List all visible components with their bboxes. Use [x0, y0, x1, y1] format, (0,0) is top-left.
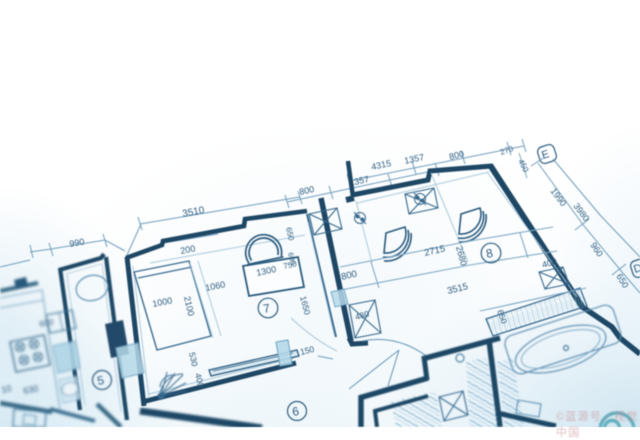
svg-text:270: 270 [499, 144, 515, 157]
svg-text:1000: 1000 [151, 295, 173, 309]
svg-text:6: 6 [291, 404, 300, 419]
svg-text:650: 650 [284, 226, 296, 242]
svg-text:800: 800 [298, 184, 315, 197]
svg-text:3510: 3510 [181, 205, 205, 220]
svg-text:5: 5 [96, 373, 105, 388]
svg-text:650: 650 [614, 272, 630, 290]
svg-text:1990: 1990 [548, 186, 568, 208]
svg-text:800: 800 [448, 149, 465, 162]
svg-text:7: 7 [262, 301, 271, 316]
svg-text:200: 200 [179, 243, 196, 256]
svg-text:480: 480 [354, 309, 371, 322]
svg-text:8: 8 [485, 246, 495, 261]
svg-text:630: 630 [22, 383, 39, 396]
svg-text:990: 990 [69, 237, 86, 249]
svg-text:2100: 2100 [182, 295, 196, 317]
svg-text:E: E [540, 148, 551, 162]
svg-text:600: 600 [39, 317, 55, 329]
svg-text:2680: 2680 [454, 245, 469, 267]
svg-text:800: 800 [340, 269, 358, 283]
svg-text:450: 450 [516, 158, 530, 174]
svg-text:1060: 1060 [204, 279, 226, 293]
svg-text:2715: 2715 [423, 243, 446, 258]
svg-text:150: 150 [299, 344, 315, 357]
svg-text:3515: 3515 [446, 281, 469, 297]
svg-text:4315: 4315 [370, 158, 392, 172]
svg-text:10: 10 [0, 383, 12, 395]
svg-text:530: 530 [187, 351, 200, 367]
svg-text:960: 960 [588, 241, 605, 259]
svg-text:1650: 1650 [298, 295, 313, 316]
svg-text:1357: 1357 [403, 152, 425, 166]
